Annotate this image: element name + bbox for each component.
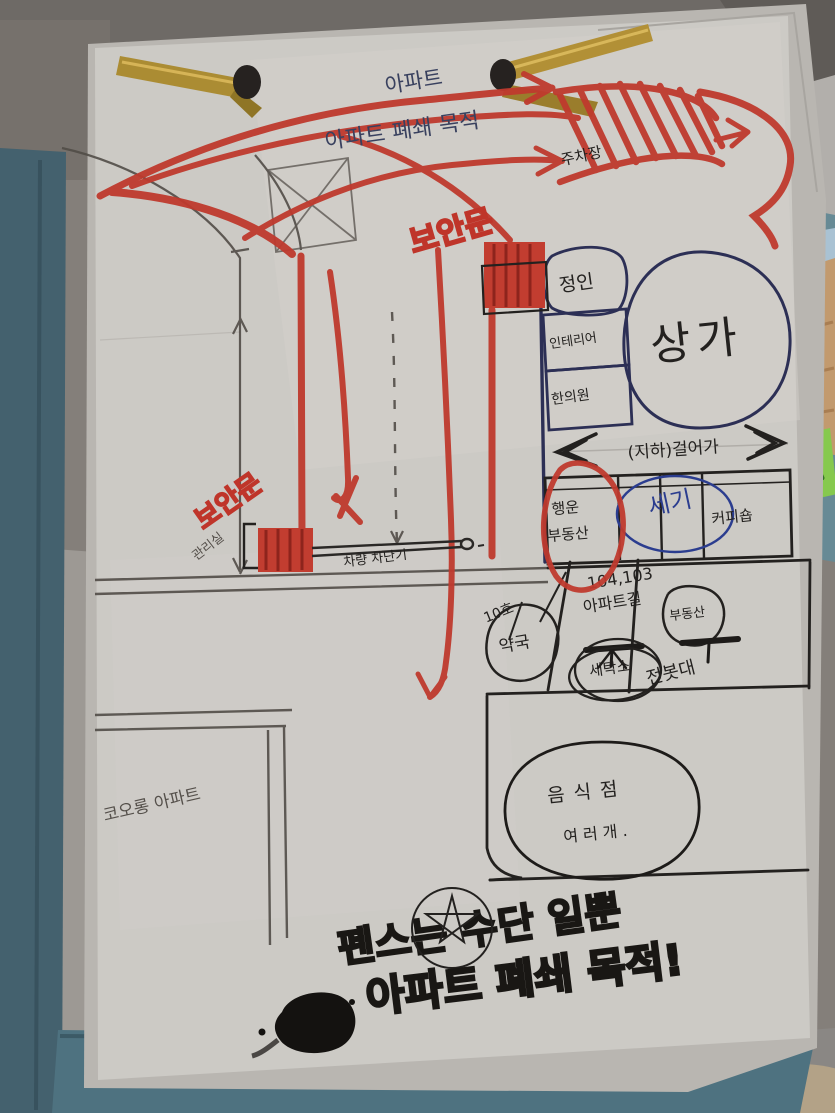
shop-haengun-line1: 행운 (551, 498, 580, 518)
scene: 관리실 코오롱 아파트 정인 인테리어 한의원 상가 (지하)걸어가 행운 부동… (0, 0, 835, 1113)
mall-circle-label: 상가 (648, 311, 746, 371)
top-security-gate (482, 242, 548, 314)
shop-haengun-line2: 부동산 (547, 524, 590, 546)
photo-of-hand-drawn-map: 관리실 코오롱 아파트 정인 인테리어 한의원 상가 (지하)걸어가 행운 부동… (0, 0, 835, 1113)
